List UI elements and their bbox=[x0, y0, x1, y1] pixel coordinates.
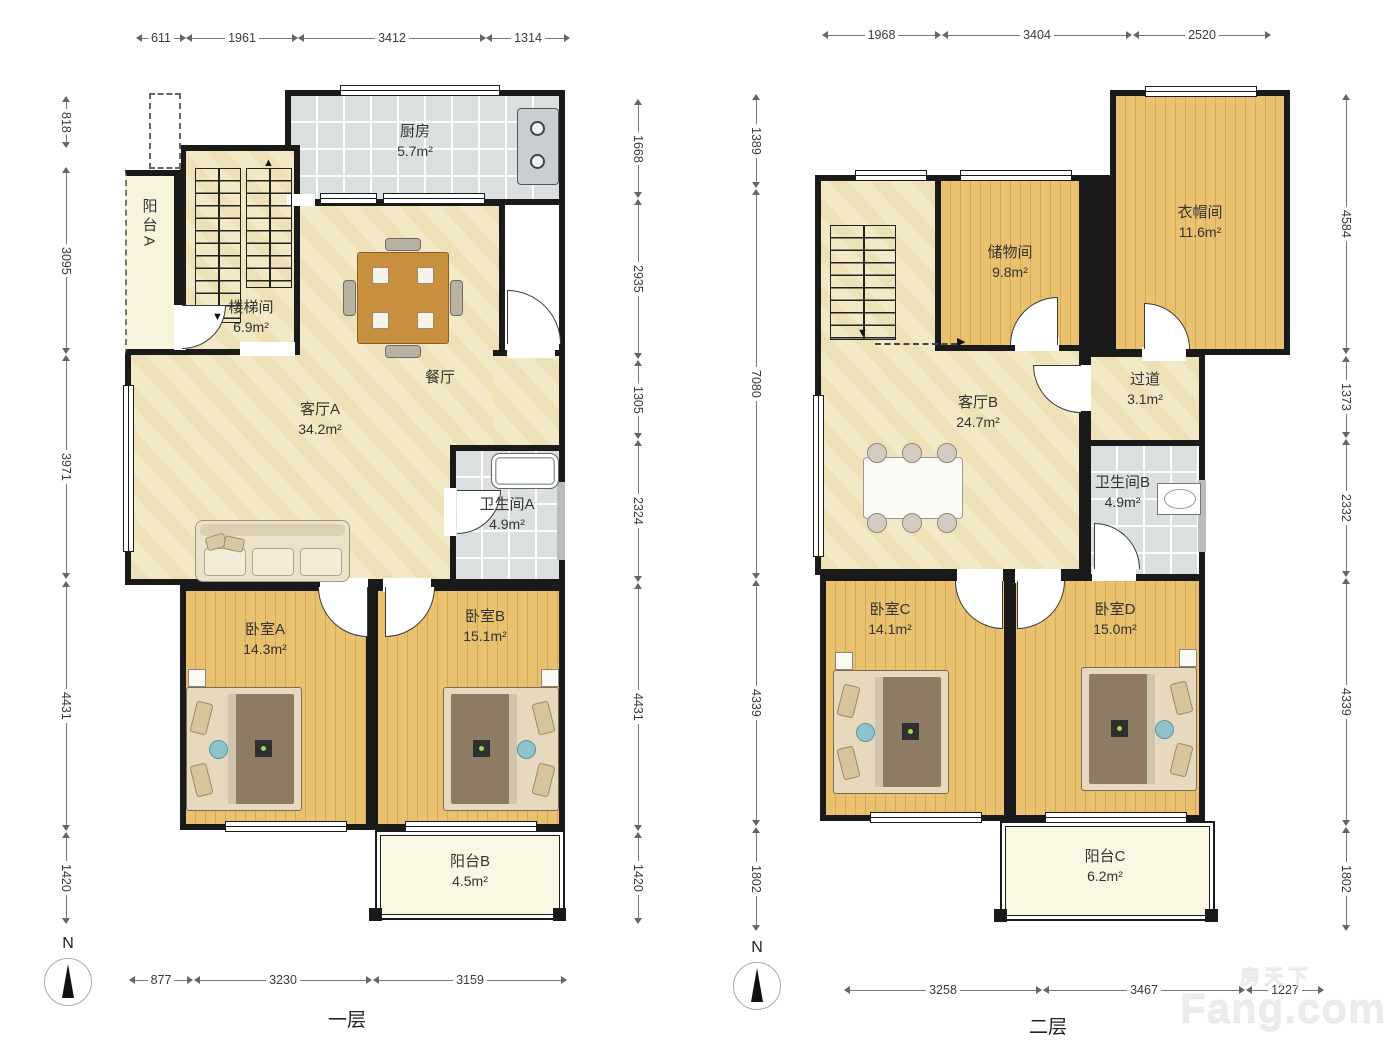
label-cloakroom: 衣帽间 11.6m² bbox=[1140, 203, 1260, 241]
bed bbox=[186, 687, 302, 811]
north-arrow-icon bbox=[62, 964, 74, 998]
bed-pillow bbox=[189, 762, 213, 797]
label-balcony-c: 阳台C 6.2m² bbox=[1045, 847, 1165, 885]
dimension: 877 bbox=[130, 972, 192, 988]
bed-runner bbox=[228, 694, 236, 804]
label-balcony-b: 阳台B 4.5m² bbox=[410, 852, 530, 890]
room-area: 15.1m² bbox=[425, 627, 545, 645]
nightstand bbox=[835, 652, 853, 670]
chair bbox=[902, 513, 922, 533]
bed-runner bbox=[1147, 674, 1155, 784]
bed bbox=[1081, 667, 1197, 791]
room-name: 卧室C bbox=[830, 600, 950, 620]
watermark: 房天下 Fang.com bbox=[1180, 960, 1395, 1027]
room-area: 14.1m² bbox=[830, 620, 950, 638]
entry-door-arc bbox=[507, 290, 561, 344]
wall-block bbox=[1205, 909, 1218, 922]
bed-pillow bbox=[1169, 742, 1193, 777]
bathtub bbox=[491, 453, 559, 489]
plate bbox=[372, 312, 389, 329]
north-label: N bbox=[62, 935, 74, 953]
stair-flight-down bbox=[830, 225, 896, 340]
label-bedroom-a: 卧室A 14.3m² bbox=[205, 620, 325, 658]
window bbox=[405, 821, 537, 832]
dimension: 4584 bbox=[1338, 95, 1354, 353]
plate bbox=[417, 312, 434, 329]
label-stairwell: 楼梯间 6.9m² bbox=[191, 298, 311, 336]
room-name: 过道 bbox=[1085, 370, 1205, 390]
dimension: 4431 bbox=[58, 582, 74, 830]
room-name: 楼梯间 bbox=[191, 298, 311, 318]
room-area: 4.9m² bbox=[447, 515, 567, 533]
dimension: 4339 bbox=[748, 581, 764, 825]
dimension: 1305 bbox=[630, 361, 646, 438]
room-name: 厨房 bbox=[355, 122, 475, 142]
bed bbox=[833, 670, 949, 794]
label-kitchen: 厨房 5.7m² bbox=[355, 122, 475, 160]
room-area: 9.8m² bbox=[950, 263, 1070, 281]
nightstand bbox=[1179, 649, 1197, 667]
label-hallway: 过道 3.1m² bbox=[1085, 370, 1205, 408]
dashed-wall bbox=[149, 93, 181, 169]
dimension: 2324 bbox=[630, 441, 646, 581]
room-name: 卧室A bbox=[205, 620, 325, 640]
room-name: 客厅B bbox=[918, 393, 1038, 413]
dimension: 4339 bbox=[1338, 579, 1354, 825]
plate bbox=[372, 267, 389, 284]
dimension: 1373 bbox=[1338, 357, 1354, 437]
bed-tray bbox=[902, 723, 919, 740]
nightstand bbox=[541, 669, 559, 687]
nightstand bbox=[188, 669, 206, 687]
dimension: 7080 bbox=[748, 190, 764, 578]
passage-opening bbox=[240, 342, 295, 356]
bed-round-pillow bbox=[856, 723, 875, 742]
room-name: 储物间 bbox=[950, 243, 1070, 263]
chair bbox=[385, 238, 421, 251]
dimension: 3230 bbox=[195, 972, 371, 988]
window bbox=[813, 395, 824, 557]
stair-path-dashed bbox=[875, 343, 957, 345]
dimension: 1389 bbox=[748, 95, 764, 187]
dimension: 3095 bbox=[58, 168, 74, 353]
label-storage: 储物间 9.8m² bbox=[950, 243, 1070, 281]
window bbox=[225, 821, 347, 832]
label-dining: 餐厅 bbox=[380, 368, 500, 388]
bed-pillow bbox=[531, 762, 555, 797]
floor2-plan: ▼ ▶ 储物间 bbox=[815, 85, 1290, 930]
label-living-b: 客厅B 24.7m² bbox=[918, 393, 1038, 431]
north-compass: N bbox=[733, 962, 781, 1010]
label-living-a: 客厅A 34.2m² bbox=[260, 400, 380, 438]
label-bath-a: 卫生间A 4.9m² bbox=[447, 495, 567, 533]
window bbox=[123, 385, 134, 552]
room-name: 餐厅 bbox=[380, 368, 500, 388]
stair-rail bbox=[863, 226, 865, 339]
wall-block bbox=[369, 908, 382, 921]
bed-round-pillow bbox=[209, 740, 228, 759]
wall-block bbox=[553, 908, 566, 921]
room-area: 6.9m² bbox=[191, 318, 311, 336]
door-opening bbox=[507, 344, 555, 358]
room-area: 3.1m² bbox=[1085, 390, 1205, 408]
room-area: 5.7m² bbox=[355, 142, 475, 160]
door-opening bbox=[1092, 567, 1136, 581]
window bbox=[870, 812, 982, 823]
room-area: 11.6m² bbox=[1140, 223, 1260, 241]
chair bbox=[937, 513, 957, 533]
dimension: 818 bbox=[58, 97, 74, 147]
dimension: 2332 bbox=[1338, 440, 1354, 576]
label-bath-b: 卫生间B 4.9m² bbox=[1065, 473, 1180, 511]
stair-rail bbox=[269, 169, 271, 287]
dimension: 1968 bbox=[823, 27, 940, 43]
dining-table bbox=[863, 457, 963, 519]
chair bbox=[937, 443, 957, 463]
bed-round-pillow bbox=[1155, 720, 1174, 739]
north-compass: N bbox=[44, 958, 92, 1006]
stair-flight-up bbox=[246, 168, 292, 288]
window bbox=[960, 170, 1072, 181]
chair bbox=[343, 280, 356, 316]
room-name: 客厅A bbox=[260, 400, 380, 420]
dimension: 1961 bbox=[187, 30, 297, 46]
wall-segment bbox=[1085, 175, 1115, 351]
bed-pillow bbox=[836, 683, 860, 718]
dimension: 3258 bbox=[845, 982, 1041, 998]
label-bedroom-d: 卧室D 15.0m² bbox=[1055, 600, 1175, 638]
room-area: 15.0m² bbox=[1055, 620, 1175, 638]
north-arrow-icon bbox=[751, 968, 763, 1002]
label-bedroom-c: 卧室C 14.1m² bbox=[830, 600, 950, 638]
bed-tray bbox=[1111, 720, 1128, 737]
room-name: 卫生间B bbox=[1065, 473, 1180, 493]
stove-burner-icon bbox=[530, 154, 545, 169]
bed-pillow bbox=[1169, 680, 1193, 715]
bed-runner bbox=[509, 694, 517, 804]
stair-arrow-up-icon: ▲ bbox=[263, 158, 274, 169]
sofa bbox=[195, 520, 350, 582]
room-name: 卧室D bbox=[1055, 600, 1175, 620]
room-name: 阳台A bbox=[139, 198, 159, 250]
room-area: 24.7m² bbox=[918, 413, 1038, 431]
room-area: 6.2m² bbox=[1045, 867, 1165, 885]
stair-path-arrow-icon: ▶ bbox=[957, 337, 965, 348]
chair bbox=[385, 345, 421, 358]
window bbox=[855, 170, 927, 181]
floor2-caption: 二层 bbox=[998, 1012, 1098, 1039]
bed-round-pillow bbox=[517, 740, 536, 759]
dimension: 1668 bbox=[630, 100, 646, 197]
stove bbox=[517, 108, 559, 185]
room-name: 阳台B bbox=[410, 852, 530, 872]
plate bbox=[417, 267, 434, 284]
window bbox=[340, 85, 500, 96]
room-name: 卫生间A bbox=[447, 495, 567, 515]
dimension: 1802 bbox=[1338, 828, 1354, 930]
dimension: 611 bbox=[137, 30, 185, 46]
window bbox=[383, 193, 485, 204]
room-area: 4.5m² bbox=[410, 872, 530, 890]
room-name: 阳台C bbox=[1045, 847, 1165, 867]
room-name: 衣帽间 bbox=[1140, 203, 1260, 223]
bed-pillow bbox=[189, 700, 213, 735]
dimension: 1314 bbox=[487, 30, 569, 46]
chair bbox=[450, 280, 463, 316]
dimension: 3971 bbox=[58, 356, 74, 578]
bed bbox=[443, 687, 559, 811]
door-opening bbox=[1142, 347, 1186, 361]
floorplan-page: ▼ ▲ bbox=[0, 0, 1400, 1050]
room-area: 4.9m² bbox=[1065, 493, 1180, 511]
floor1-plan: ▼ ▲ bbox=[125, 90, 570, 925]
room-area: 34.2m² bbox=[260, 420, 380, 438]
sofa-cushion bbox=[252, 548, 294, 576]
label-bedroom-b: 卧室B 15.1m² bbox=[425, 607, 545, 645]
dimension: 1420 bbox=[630, 833, 646, 923]
window bbox=[320, 193, 377, 204]
room-area: 14.3m² bbox=[205, 640, 325, 658]
dimension: 2935 bbox=[630, 200, 646, 358]
sofa-cushion bbox=[300, 548, 342, 576]
dimension: 1802 bbox=[748, 828, 764, 930]
chair bbox=[902, 443, 922, 463]
dining-table bbox=[357, 252, 449, 344]
bed-runner bbox=[875, 677, 883, 787]
bed-pillow bbox=[531, 700, 555, 735]
chair bbox=[867, 443, 887, 463]
bed-tray bbox=[473, 740, 490, 757]
wall-block bbox=[994, 909, 1007, 922]
dimension: 4431 bbox=[630, 584, 646, 830]
bed-tray bbox=[255, 740, 272, 757]
dimension: 3412 bbox=[299, 30, 485, 46]
dimension: 3404 bbox=[943, 27, 1131, 43]
label-balcony-a: 阳台A bbox=[139, 198, 159, 250]
north-label: N bbox=[751, 939, 763, 957]
dimension: 2520 bbox=[1134, 27, 1270, 43]
floor1-caption: 一层 bbox=[297, 1005, 397, 1032]
dimension: 3159 bbox=[374, 972, 566, 988]
stove-burner-icon bbox=[530, 121, 545, 136]
window bbox=[1145, 86, 1257, 97]
stair-arrow-down-icon: ▼ bbox=[857, 328, 868, 339]
chair bbox=[867, 513, 887, 533]
watermark-en: Fang.com bbox=[1180, 989, 1395, 1027]
bed-pillow bbox=[836, 745, 860, 780]
room-name: 卧室B bbox=[425, 607, 545, 627]
window bbox=[1045, 812, 1187, 823]
dimension: 1420 bbox=[58, 833, 74, 923]
